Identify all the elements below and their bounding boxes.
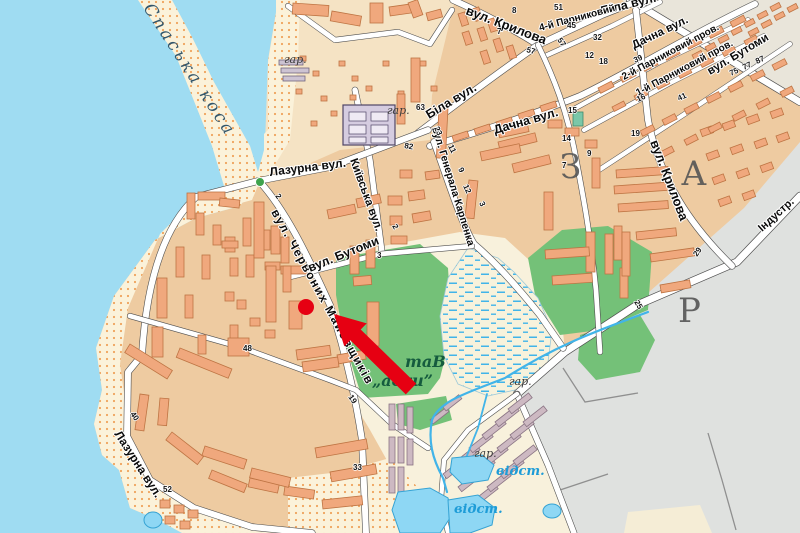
svg-text:51: 51 — [554, 3, 563, 12]
label-pond-1: таВ — [405, 352, 446, 371]
svg-text:18: 18 — [599, 57, 608, 66]
svg-text:9: 9 — [587, 149, 592, 158]
svg-text:7: 7 — [562, 161, 567, 170]
svg-text:45: 45 — [567, 21, 576, 30]
region-letter-r: Р — [678, 291, 701, 331]
svg-text:32: 32 — [593, 33, 602, 42]
svg-text:52: 52 — [163, 485, 172, 494]
map-canvas: Спаська коса вул. Крилова вул. Крилова Б… — [0, 0, 800, 533]
svg-text:15: 15 — [568, 106, 577, 115]
label-basin-2: відст. — [454, 502, 503, 517]
label-garage-3: гар. — [509, 375, 532, 388]
svg-text:12: 12 — [585, 51, 594, 60]
marker-dot — [298, 299, 314, 315]
svg-text:3: 3 — [377, 251, 382, 260]
label-garage-2: гар. — [387, 104, 410, 117]
svg-text:19: 19 — [631, 129, 640, 138]
label-basin-1: відст. — [496, 464, 545, 479]
svg-text:7: 7 — [497, 27, 502, 36]
label-garage-4: гар. — [474, 447, 497, 460]
transit-stop-dot — [256, 178, 265, 187]
svg-text:33: 33 — [353, 463, 362, 472]
region-letter-a: А — [681, 154, 707, 194]
svg-text:63: 63 — [416, 103, 425, 112]
svg-text:14: 14 — [562, 134, 571, 143]
city-map[interactable]: Спаська коса вул. Крилова вул. Крилова Б… — [0, 0, 800, 533]
svg-text:8: 8 — [512, 6, 517, 15]
svg-text:48: 48 — [243, 344, 252, 353]
label-garage-1: гар. — [284, 53, 307, 66]
